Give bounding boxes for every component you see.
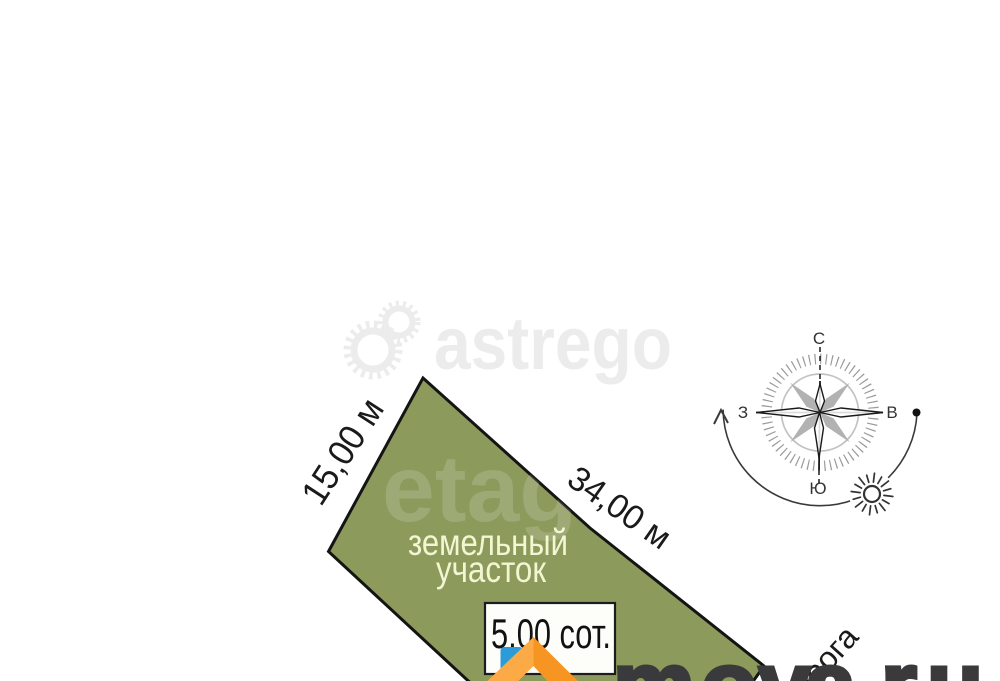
svg-text:участок: участок — [436, 549, 547, 590]
svg-text:Ю: Ю — [809, 479, 826, 498]
svg-text:mova.ru: mova.ru — [613, 634, 983, 681]
svg-text:В: В — [886, 403, 897, 422]
svg-text:astrego: astrego — [434, 302, 672, 385]
svg-text:С: С — [813, 329, 825, 348]
svg-text:З: З — [738, 403, 748, 422]
